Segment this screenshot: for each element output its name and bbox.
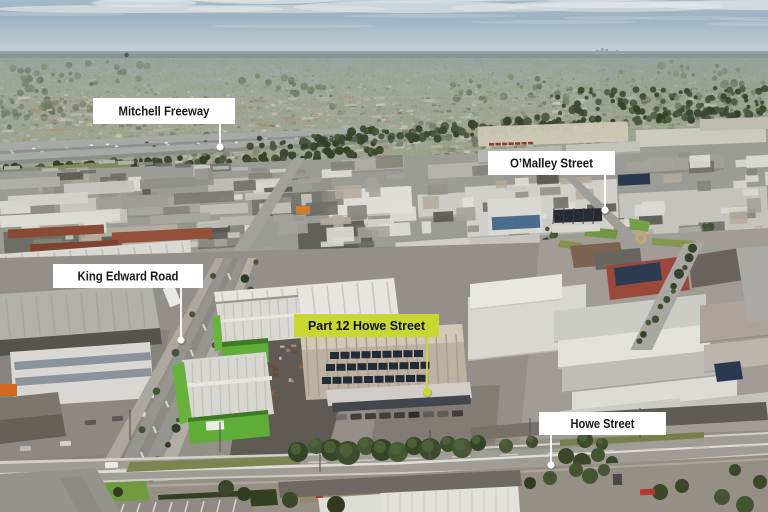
svg-text:King Edward Road: King Edward Road bbox=[78, 269, 179, 284]
svg-text:O’Malley Street: O’Malley Street bbox=[510, 156, 594, 171]
svg-text:Part 12 Howe Street: Part 12 Howe Street bbox=[308, 318, 426, 333]
svg-text:Howe Street: Howe Street bbox=[571, 416, 636, 431]
svg-text:Mitchell Freeway: Mitchell Freeway bbox=[119, 104, 211, 119]
